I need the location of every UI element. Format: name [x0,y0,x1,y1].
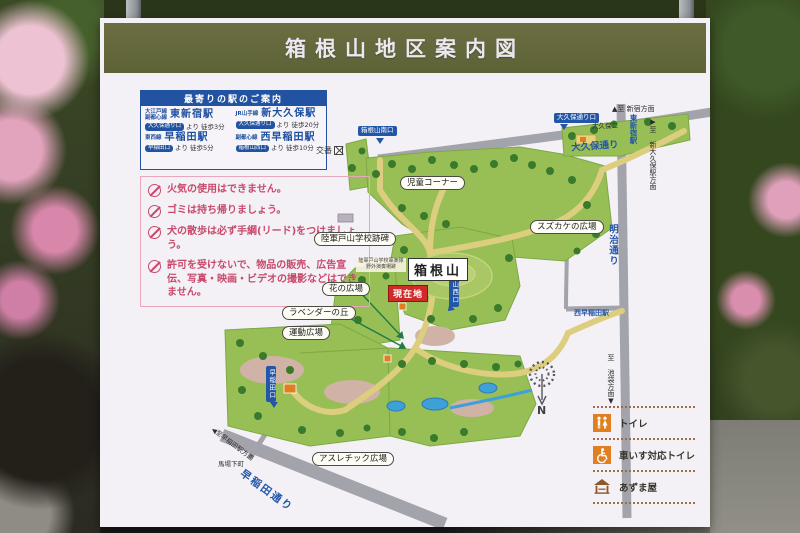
station-walk-time: より 徒歩10分 [271,145,314,152]
nearest-stations-box: 最寄りの駅のご案内 大江戸線 副都心線東新宿駅 大久保通り口より 徒歩3分 JR… [140,90,327,170]
legend-divider [593,470,695,472]
police-box-icon [334,146,343,155]
sign-post-top-right [679,0,694,20]
no-unauthorized-icon [148,260,161,273]
area-label-lavender-hill: ラベンダーの丘 [282,306,356,320]
entrance-pointer-waseda [270,402,278,408]
signboard: 箱根山地区案内図 [100,18,710,527]
legend-item-gazebo: あずま屋 [593,478,695,496]
rule-text: 火気の使用はできません。 [167,183,287,197]
entrance-pointer-okubo [560,124,568,130]
gray-wall-background [700,420,800,533]
monument-label-toyama-school: 陸軍戸山学校跡碑 [314,232,396,246]
compass-north-label: N [537,404,546,417]
photo-of-park-sign: 箱根山地区案内図 [0,0,800,533]
peak-label-hakoneyama: 箱根山 [408,258,468,281]
legend-item-toilet: トイレ [593,414,695,432]
legend-label: トイレ [619,416,648,430]
station-lines: JR山手線 [236,111,259,117]
entrance-label-hakoneyama-south: 箱根山南口 [358,126,397,136]
station-name: 新大久保駅 [261,109,316,119]
entrance-pointer-south [376,138,384,144]
station-entry-waseda: 東西線早稲田駅 早稲田口より 徒歩5分 [145,133,232,153]
station-walk-time: より 徒歩20分 [277,122,320,129]
area-label-suzukake-plaza: スズカケの広場 [530,220,604,234]
station-gate-badge: 早稲田口 [145,145,173,153]
legend-divider [593,406,695,408]
direction-to-shin-okubo-station: ▶至 新大久保駅方面 [648,118,658,190]
direction-to-ikebukuro: 至 池袋方面▼ [606,354,616,405]
rule-take-trash-home: ゴミは持ち帰りましょう。 [148,204,362,218]
take-trash-home-icon [148,205,161,218]
legend-label: あずま屋 [619,480,657,494]
map-legend: トイレ 車いす対応トイレ あずま屋 [593,406,695,510]
station-lines: 副都心線 [236,135,258,141]
map-station-higashi-shinjuku: 東新宿駅 [628,114,639,144]
area-label-athletic-plaza: アスレチック広場 [312,452,394,466]
legend-divider [593,502,695,504]
no-fire-icon [148,184,161,197]
legend-label: 車いす対応トイレ [619,448,695,462]
station-name: 早稲田駅 [165,133,209,143]
station-name: 東新宿駅 [170,110,214,120]
toilet-icon [593,414,611,432]
cherry-blossom-foliage-left [0,0,104,533]
police-box-text: 交番 [316,145,332,156]
map-station-nishi-waseda: 西早稲田駅 [574,308,609,318]
police-box-label: 交番 [316,145,343,156]
station-entry-nishi-waseda: 副都心線西早稲田駅 箱根山西口より 徒歩10分 [236,133,323,153]
station-gate-badge: 大久保通り口 [236,121,275,129]
station-entry-shin-okubo: JR山手線新大久保駅 大久保通り口より 徒歩20分 [236,109,323,131]
dog-leash-icon [148,226,161,239]
stations-grid: 大江戸線 副都心線東新宿駅 大久保通り口より 徒歩3分 JR山手線新大久保駅 大… [141,106,326,155]
current-location-marker: 現在地 [388,285,428,302]
legend-item-wheelchair-toilet: 車いす対応トイレ [593,446,695,464]
note-army-band-site: 陸軍戸山学校軍楽隊 野外演奏場跡 [356,258,406,272]
station-lines: 東西線 [145,135,162,141]
legend-divider [593,438,695,440]
station-name: 西早稲田駅 [261,133,316,143]
street-label-meiji-dori: 明治通り [605,224,619,266]
wheelchair-toilet-icon [593,446,611,464]
entrance-label-waseda: 早稲田口 [266,366,276,402]
station-entry-higashi-shinjuku: 大江戸線 副都心線東新宿駅 大久保通り口より 徒歩3分 [145,109,232,131]
rule-text: ゴミは持ち帰りましょう。 [167,204,286,218]
station-gate-badge: 大久保通り口 [145,123,184,131]
rule-no-fire: 火気の使用はできません。 [148,183,362,197]
stations-box-header: 最寄りの駅のご案内 [141,91,326,106]
crossing-label-babashitacho: 馬場下町 [218,458,244,468]
area-label-hana-plaza: 花の広場 [322,282,370,296]
direction-to-shinjuku: ▲至 新宿方面 [612,104,655,114]
station-lines: 大江戸線 副都心線 [145,109,167,121]
station-walk-time: より 徒歩5分 [175,145,214,152]
station-walk-time: より 徒歩3分 [186,124,225,131]
station-gate-badge: 箱根山西口 [236,145,270,153]
crossing-label-okubo-2: 大久保二 [592,120,618,130]
area-label-undo-field: 運動広場 [282,326,330,340]
gazebo-icon [593,478,611,496]
area-label-kodomo-corner: 児童コーナー [400,176,465,190]
